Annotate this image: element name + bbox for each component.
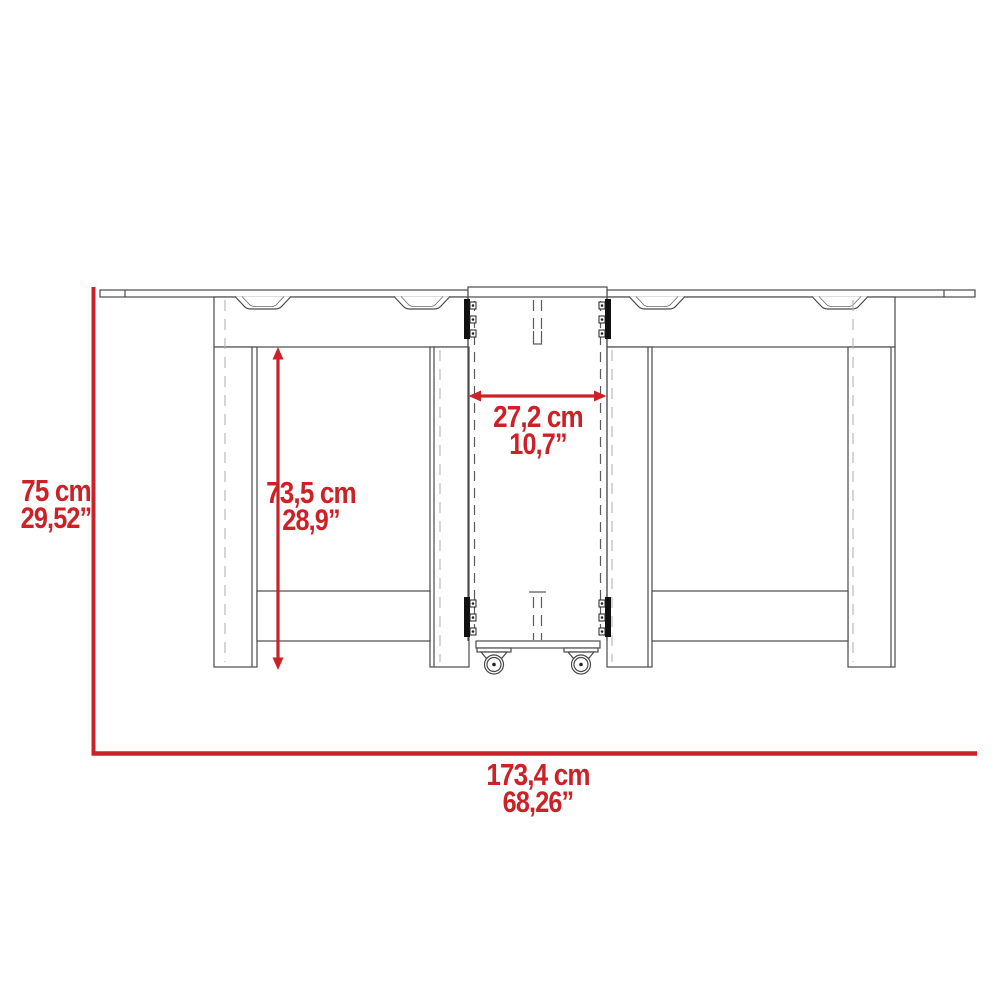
right-apron xyxy=(607,297,895,348)
left-lower-rail xyxy=(257,591,430,641)
dimension-diagram: 75 cm 29,52” 73,5 cm 28,9” 27,2 cm 10,7”… xyxy=(0,0,1000,1000)
dimension-label-overall-width: 173,4 cm 68,26” xyxy=(471,761,605,817)
left-outer-leg xyxy=(214,347,257,667)
caster-left xyxy=(477,648,511,674)
overall-width-imperial: 68,26” xyxy=(471,789,605,817)
hidden-center-divider-bottom xyxy=(529,592,546,640)
right-inner-leg xyxy=(607,347,652,667)
tabletop-left-leaf xyxy=(100,290,468,297)
overall-width-metric: 173,4 cm xyxy=(471,761,605,789)
hinge-bottom-right xyxy=(599,597,611,637)
caster-right xyxy=(564,648,598,674)
tabletop xyxy=(100,287,975,297)
left-inner-leg xyxy=(430,347,469,667)
leg-height-metric: 73,5 cm xyxy=(260,479,362,507)
dimension-label-overall-height: 75 cm 29,52” xyxy=(14,477,98,533)
right-lower-rail xyxy=(652,591,848,641)
caster-base-plate xyxy=(476,641,600,648)
center-column xyxy=(468,297,607,648)
hinge-top-left xyxy=(464,299,476,339)
right-outer-leg xyxy=(848,347,895,667)
overall-height-imperial: 29,52” xyxy=(14,505,98,533)
overall-height-metric: 75 cm xyxy=(14,477,98,505)
leg-height-imperial: 28,9” xyxy=(260,507,362,535)
center-width-metric: 27,2 cm xyxy=(487,403,589,431)
hinge-top-right xyxy=(599,299,611,339)
table-line-drawing xyxy=(0,0,1000,1000)
left-apron xyxy=(214,297,468,348)
dimension-label-center-width: 27,2 cm 10,7” xyxy=(487,403,589,459)
hinge-bottom-left xyxy=(464,597,476,637)
tabletop-center-section xyxy=(468,287,607,297)
hidden-center-divider-top xyxy=(534,300,542,344)
dimension-label-leg-height: 73,5 cm 28,9” xyxy=(260,479,362,535)
center-width-imperial: 10,7” xyxy=(487,431,589,459)
tabletop-right-leaf xyxy=(607,290,975,297)
